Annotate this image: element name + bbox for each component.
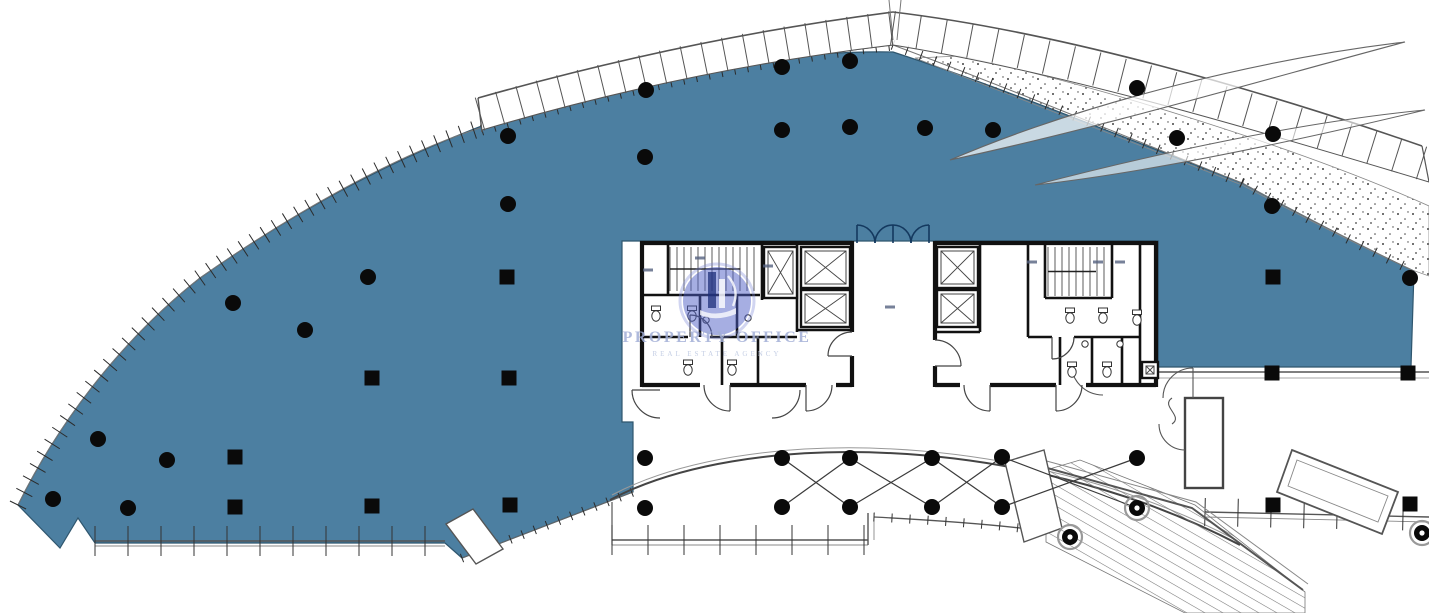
- watermark-title: PROPERTY OFFICE: [623, 329, 812, 346]
- floor-plan-svg: PROPERTY OFFICE REAL ESTATE AGENCY: [0, 0, 1429, 613]
- floor-plan-page: PROPERTY OFFICE REAL ESTATE AGENCY: [0, 0, 1429, 613]
- right-wing-walls: [1158, 372, 1429, 378]
- watermark-emblem: [683, 267, 751, 335]
- watermark-subtitle: REAL ESTATE AGENCY: [652, 350, 781, 358]
- tilted-canopy: [1277, 450, 1398, 534]
